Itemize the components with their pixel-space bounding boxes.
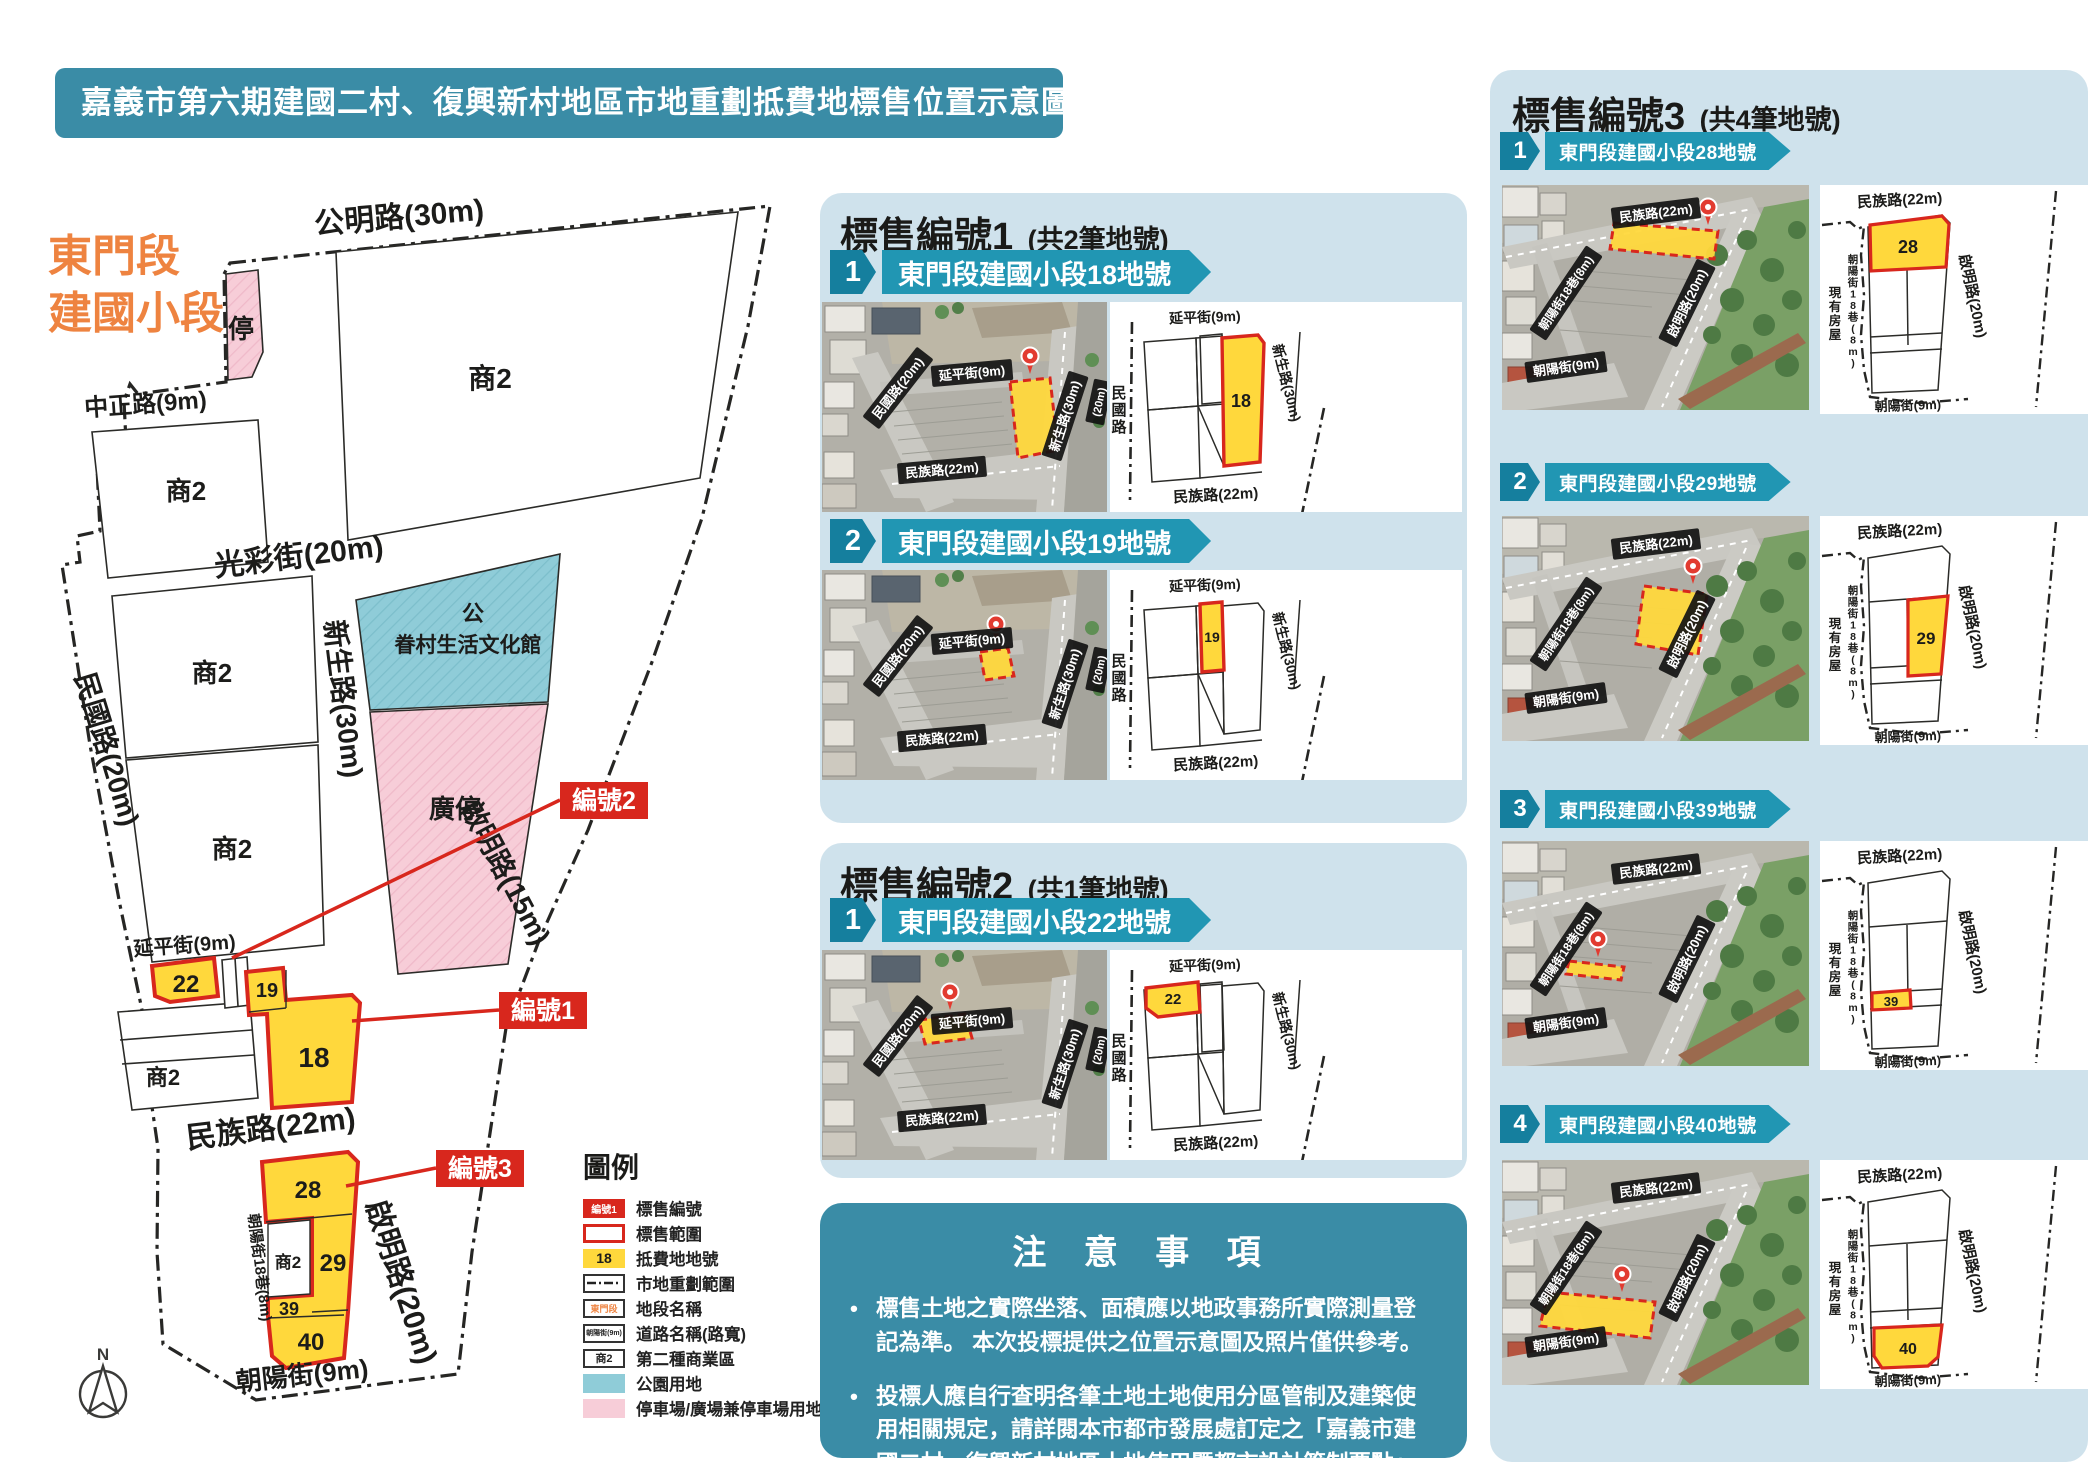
legend-item: 標售範圍 [583,1223,833,1243]
stacked-road-label: 現有房屋 [1829,1261,1842,1317]
item-ribbon: 2 東門段建國小段29地號 [1500,463,1791,501]
compass-icon: N [80,1345,126,1417]
callout-2: 編號2 [572,786,636,815]
item-number: 2 [1500,463,1540,501]
stacked-road-label: 民國路 [1111,385,1127,436]
item-number: 1 [830,250,876,294]
sale-plot-highlight [980,648,1014,680]
item-label: 東門段建國小段39地號 [1545,790,1791,828]
svg-text:39: 39 [1884,994,1898,1009]
svg-text:朝陽街(9m): 朝陽街(9m) [1874,397,1941,414]
legend-swatch-yellow: 18 [583,1249,625,1268]
svg-text:朝陽街(9m): 朝陽街(9m) [1874,1372,1941,1389]
item-label: 東門段建國小段18地號 [882,250,1211,294]
plot-label-19: 19 [256,980,278,1002]
legend-swatch-badge: 編號1 [583,1199,625,1218]
sale-section-3: 標售編號3 (共4筆地號) 1 東門段建國小段28地號 [1490,70,2088,1462]
stacked-road-label: 朝陽街18巷(8m) [1847,909,1859,1026]
legend-item-label: 道路名稱(路寬) [636,1321,746,1345]
item-label: 東門段建國小段40地號 [1545,1105,1791,1143]
legend-item-label: 第二種商業區 [636,1346,735,1370]
road-label-gongming: 公明路(30m) [313,194,485,242]
item-row: 民國路(20m) 延平街(9m) 新生路(30m) (20m) 民族路(22m)… [820,570,1467,780]
legend-item-label: 標售範圍 [636,1221,702,1245]
stacked-road-label: 現有房屋 [1829,617,1842,673]
aerial-photo: 民族路(22m) 朝陽街18巷(8m) 啟明路(20m) 朝陽街(9m) [1502,185,1809,410]
item-row: 民族路(22m) 朝陽街18巷(8m) 啟明路(20m) 朝陽街(9m) 29 … [1500,516,2098,741]
aerial-photo: 民族路(22m) 朝陽街18巷(8m) 啟明路(20m) 朝陽街(9m) [1502,1160,1809,1385]
stacked-road-label: 現有房屋 [1829,942,1842,998]
notes-body: • 標售土地之實際坐落、面積應以地政事務所實際測量登記為準。 本次投標提供之位置… [850,1292,1433,1481]
item-label: 東門段建國小段29地號 [1545,463,1791,501]
item-number: 3 [1500,790,1540,828]
note-text: 標售土地之實際坐落、面積應以地政事務所實際測量登記為準。 本次投標提供之位置示意… [876,1292,1433,1360]
note-bullet: • 標售土地之實際坐落、面積應以地政事務所實際測量登記為準。 本次投標提供之位置… [850,1292,1433,1360]
legend-title: 圖例 [583,1146,833,1186]
location-diagram: 29 民族路(22m) 啟明路(20m) 朝陽街18巷(8m) 現有房屋 朝陽街… [1820,516,2093,745]
item-number: 4 [1500,1105,1540,1143]
item-ribbon: 4 東門段建國小段40地號 [1500,1105,1791,1143]
legend: 圖例 編號1 標售編號 標售範圍18 抵費地地號 市地重劃範圍東門段 地段名稱朝… [583,1146,833,1423]
legend-item: 東門段 地段名稱 [583,1298,833,1318]
svg-text:延平街(9m): 延平街(9m) [1168,956,1241,975]
legend-item-label: 抵費地地號 [636,1246,719,1270]
legend-item-label: 標售編號 [636,1196,702,1220]
stacked-road-label: 現有房屋 [1829,286,1842,342]
plot-label-39: 39 [279,1299,299,1319]
stacked-road-label: 朝陽街18巷(8m) [1847,584,1859,701]
location-diagram: 18 延平街(9m) 民國路 新生路(30m) 民族路(22m) [1110,302,1462,512]
legend-swatch-segment: 東門段 [583,1299,625,1318]
location-diagram: 28 民族路(22m) 啟明路(20m) 朝陽街18巷(8m) 現有房屋 朝陽街… [1820,185,2093,414]
aerial-photo: 民國路(20m) 延平街(9m) 新生路(30m) (20m) 民族路(22m) [822,302,1107,512]
item-label: 東門段建國小段22地號 [882,898,1211,942]
item-number: 2 [830,519,876,563]
svg-text:19: 19 [1204,629,1220,645]
item-row: 民國路(20m) 延平街(9m) 新生路(30m) (20m) 民族路(22m)… [820,302,1467,512]
stacked-road-label: 民國路 [1111,1033,1127,1084]
plot-label-40: 40 [298,1329,325,1356]
legend-item-label: 市地重劃範圍 [636,1271,735,1295]
svg-text:朝陽街(9m): 朝陽街(9m) [1874,1053,1941,1070]
road-label-qiming20: 啟明路(20m) [359,1196,443,1368]
legend-item-label: 停車場/廣場兼停車場用地 [636,1396,822,1420]
zone-label-park1: 公 [462,601,484,626]
location-diagram: 39 民族路(22m) 啟明路(20m) 朝陽街18巷(8m) 現有房屋 朝陽街… [1820,841,2093,1070]
notes-title: 注 意 事 項 [820,1225,1467,1274]
legend-item: 朝陽街(9m) 道路名稱(路寬) [583,1323,833,1343]
item-number: 1 [830,898,876,942]
location-diagram: 19 延平街(9m) 民國路 新生路(30m) 民族路(22m) [1110,570,1462,780]
svg-text:18: 18 [1231,391,1251,411]
callout-3: 編號3 [448,1154,512,1183]
bullet-dot-icon: • [850,1380,876,1481]
item-row: 民族路(22m) 朝陽街18巷(8m) 啟明路(20m) 朝陽街(9m) 40 … [1500,1160,2098,1385]
location-diagram: 22 延平街(9m) 民國路 新生路(30m) 民族路(22m) [1110,950,1462,1160]
legend-swatch-dash [583,1274,625,1293]
note-bullet: • 投標人應自行查明各筆土地土地使用分區管制及建築使用相關規定，請詳閱本市都市發… [850,1380,1433,1481]
callout-1: 編號1 [511,996,575,1025]
legend-swatch-parking [583,1399,625,1418]
road-label-chaoyang: 朝陽街(9m) [234,1353,369,1397]
legend-item: 停車場/廣場兼停車場用地 [583,1398,833,1418]
compass-n-label: N [97,1345,109,1364]
zone-label-shang2-w2: 商2 [192,658,232,688]
item-ribbon: 3 東門段建國小段39地號 [1500,790,1791,828]
item-ribbon: 1 東門段建國小段22地號 [830,898,1211,942]
item-label: 東門段建國小段28地號 [1545,132,1791,170]
section-subtitle: (共4筆地號) [1700,105,1841,135]
item-ribbon: 1 東門段建國小段18地號 [830,250,1211,294]
plot-label-22: 22 [173,971,200,998]
item-row: 民族路(22m) 朝陽街18巷(8m) 啟明路(20m) 朝陽街(9m) 28 … [1500,185,2098,410]
zone-label-shang2-notch: 商2 [275,1252,301,1272]
stacked-road-label: 民國路 [1111,653,1127,704]
svg-text:22: 22 [1165,991,1182,1008]
svg-text:28: 28 [1898,237,1918,257]
legend-item: 商2 第二種商業區 [583,1348,833,1368]
svg-text:朝陽街(9m): 朝陽街(9m) [1874,728,1941,745]
stacked-road-label: 朝陽街18巷(8m) [1847,1228,1859,1345]
legend-item: 編號1 標售編號 [583,1198,833,1218]
svg-text:延平街(9m): 延平街(9m) [1168,308,1241,327]
svg-text:29: 29 [1917,629,1936,648]
svg-text:延平街(9m): 延平街(9m) [1168,576,1241,595]
sale-section-1: 標售編號1 (共2筆地號) 1 東門段建國小段18地號 民國路(20m) [820,193,1467,823]
zone-label-parking: 停 [228,314,254,344]
zone-label-shang2-ne: 商2 [468,363,512,394]
road-label-zhongzheng: 中正路(9m) [83,386,207,422]
aerial-photo: 民族路(22m) 朝陽街18巷(8m) 啟明路(20m) 朝陽街(9m) [1502,841,1809,1066]
poster-root: 嘉義市第六期建國二村、復興新村地區市地重劃抵費地標售位置示意圖 東門段 建國小段 [0,0,2100,1483]
item-label: 東門段建國小段19地號 [882,519,1211,563]
zone-label-park2: 眷村生活文化館 [395,633,542,657]
item-row: 民族路(22m) 朝陽街18巷(8m) 啟明路(20m) 朝陽街(9m) 39 … [1500,841,2098,1066]
legend-item-label: 地段名稱 [636,1296,702,1320]
legend-item: 公園用地 [583,1373,833,1393]
legend-swatch-commercial: 商2 [583,1349,625,1368]
zone-label-shang2-w1: 商2 [166,476,206,506]
plot-label-29: 29 [320,1250,347,1277]
sale-section-2: 標售編號2 (共1筆地號) 1 東門段建國小段22地號 民國路(20m) [820,843,1467,1178]
location-diagram: 40 民族路(22m) 啟明路(20m) 朝陽街18巷(8m) 現有房屋 朝陽街… [1820,1160,2093,1389]
stacked-road-label: 朝陽街18巷(8m) [1847,253,1859,370]
item-ribbon: 2 東門段建國小段19地號 [830,519,1211,563]
aerial-photo: 民國路(20m) 延平街(9m) 新生路(30m) (20m) 民族路(22m) [822,950,1107,1160]
legend-item: 18 抵費地地號 [583,1248,833,1268]
legend-item-label: 公園用地 [636,1371,702,1395]
zone-label-shang2-sw: 商2 [146,1065,180,1090]
legend-item: 市地重劃範圍 [583,1273,833,1293]
zone-label-shang2-w3: 商2 [212,834,252,864]
legend-swatch-park [583,1374,625,1393]
aerial-photo: 民族路(22m) 朝陽街18巷(8m) 啟明路(20m) 朝陽街(9m) [1502,516,1809,741]
bullet-dot-icon: • [850,1292,876,1360]
plot-label-28: 28 [295,1177,322,1204]
notes-panel: 注 意 事 項 • 標售土地之實際坐落、面積應以地政事務所實際測量登記為準。 本… [820,1203,1467,1458]
item-ribbon: 1 東門段建國小段28地號 [1500,132,1791,170]
legend-swatch-outline [583,1224,625,1243]
aerial-photo: 民國路(20m) 延平街(9m) 新生路(30m) (20m) 民族路(22m) [822,570,1107,780]
item-number: 1 [1500,132,1540,170]
svg-text:40: 40 [1899,1341,1917,1358]
item-row: 民國路(20m) 延平街(9m) 新生路(30m) (20m) 民族路(22m)… [820,950,1467,1160]
note-text: 投標人應自行查明各筆土地土地使用分區管制及建築使用相關規定，請詳閱本市都市發展處… [876,1380,1433,1481]
legend-swatch-road: 朝陽街(9m) [583,1324,625,1343]
plot-label-18: 18 [298,1042,329,1073]
zone-park [356,554,560,710]
